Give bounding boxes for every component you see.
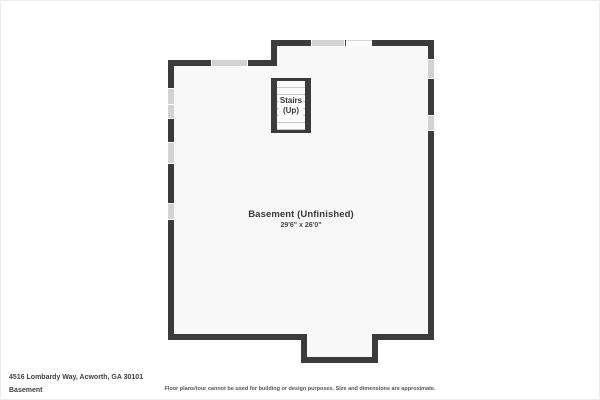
window [311, 40, 345, 46]
room-dimensions: 29'6" x 26'0" [171, 222, 431, 229]
wall-bottom-right [372, 334, 434, 340]
window [168, 88, 174, 119]
footer-disclaimer: Floor plans/tour cannot be used for buil… [1, 386, 599, 392]
window [428, 59, 434, 79]
wall-bump-bottom [301, 357, 378, 363]
stairs: Stairs (Up) [271, 78, 311, 133]
room-name: Basement (Unfinished) [171, 209, 431, 220]
window [428, 115, 434, 131]
window [211, 60, 248, 66]
window [168, 142, 174, 164]
wall-bottom-left [168, 334, 307, 340]
wall-right [428, 40, 434, 340]
footer-address: 4516 Lombardy Way, Acworth, GA 30101 [9, 374, 143, 381]
floor-plan-page: Stairs (Up) Basement (Unfinished) 29'6" … [0, 0, 600, 400]
door-opening [346, 40, 372, 46]
stairs-label: Stairs (Up) [279, 96, 303, 116]
stairs-label-line1: Stairs [280, 96, 302, 106]
room-label-block: Basement (Unfinished) 29'6" x 26'0" [171, 209, 431, 229]
window-mullion [168, 104, 174, 105]
stairs-label-line2: (Up) [280, 106, 302, 116]
